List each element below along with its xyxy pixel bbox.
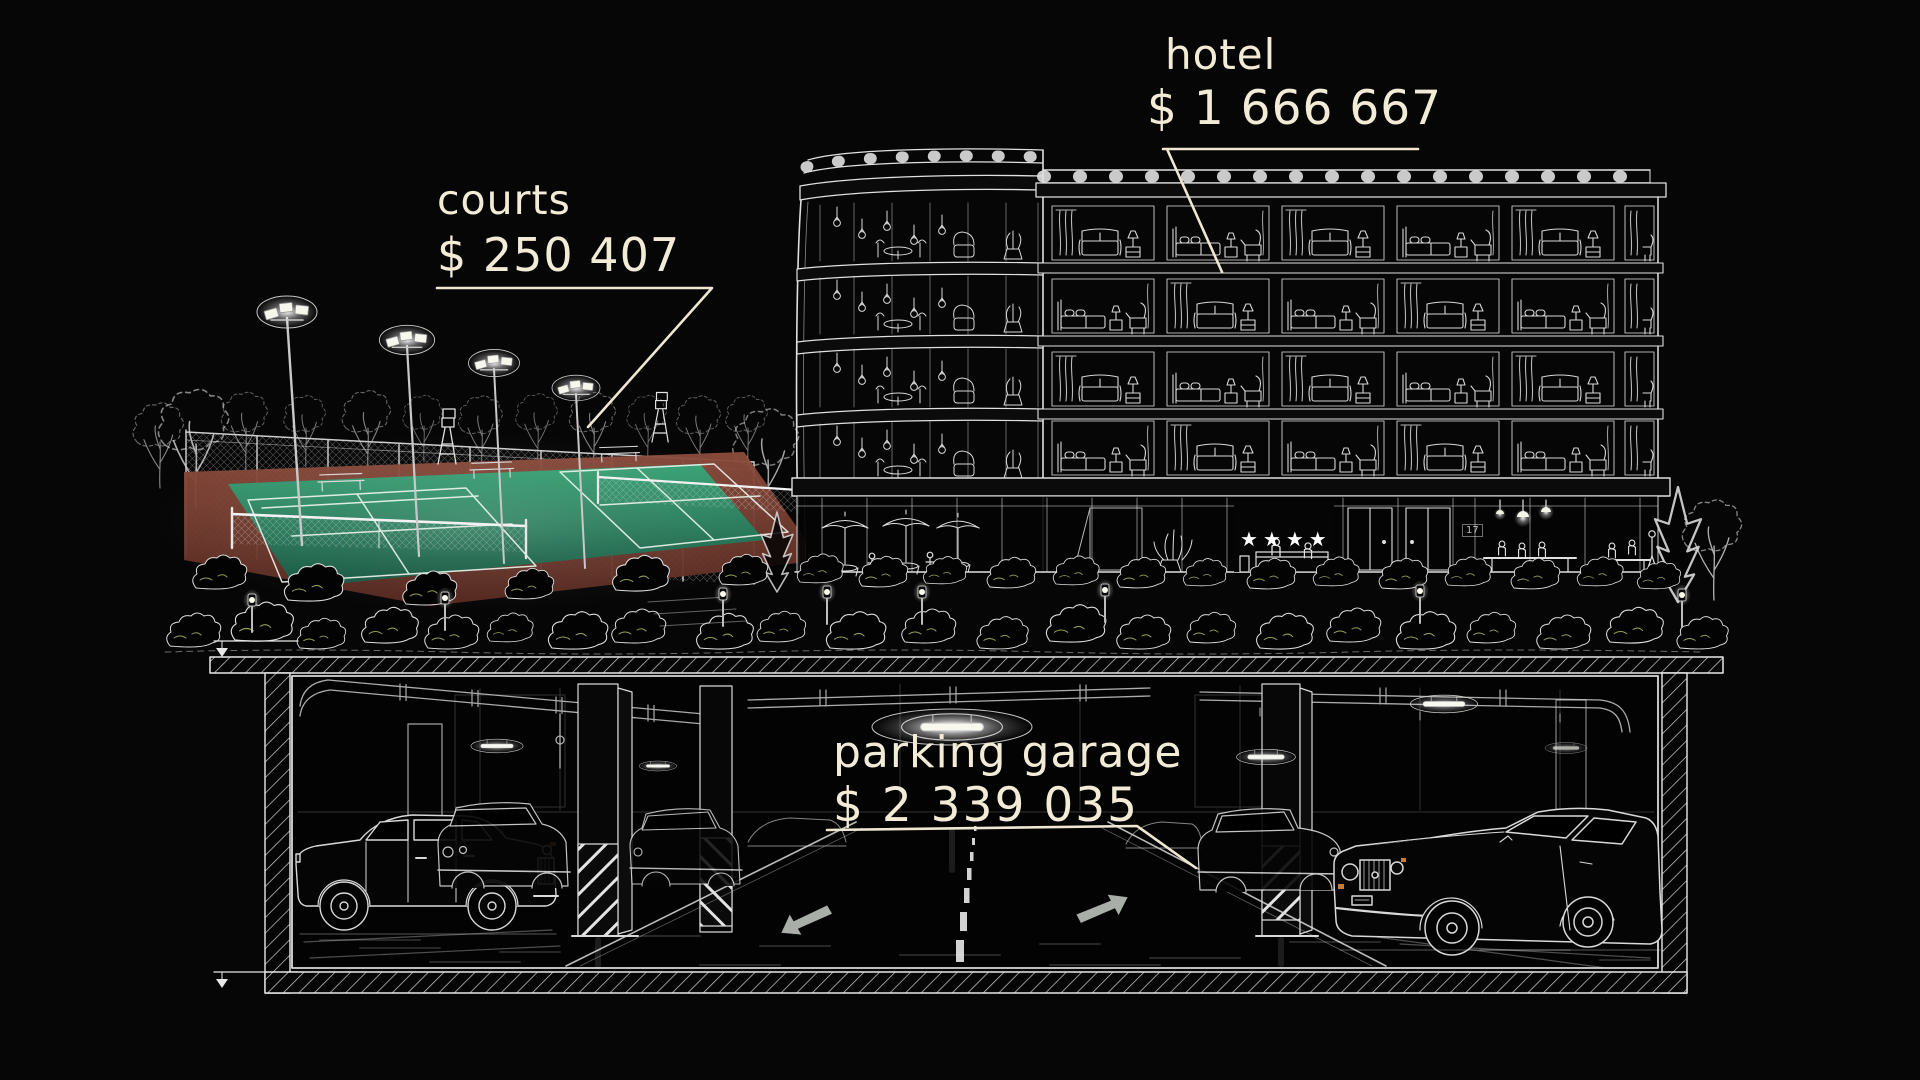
column-hazard [572,684,638,936]
garage-wall-right [1662,673,1687,993]
night-architecture-illustration: courts $ 250 407 hotel $ 1 666 667 parki… [0,0,1920,1080]
garage-wall-left [265,673,290,993]
entrance-canopy [792,478,1670,496]
scene-illustration [0,0,1920,1080]
garage-floor-slab [265,972,1687,993]
roof-parapet [1043,170,1650,183]
ground-slab [210,657,1723,673]
datum-marker-ground [214,641,298,657]
parking-garage [265,673,1687,993]
hotel-building [792,149,1670,576]
topsoil-line [165,650,1700,654]
hotel-room-block [1036,170,1666,478]
umpire-chair [652,393,668,443]
